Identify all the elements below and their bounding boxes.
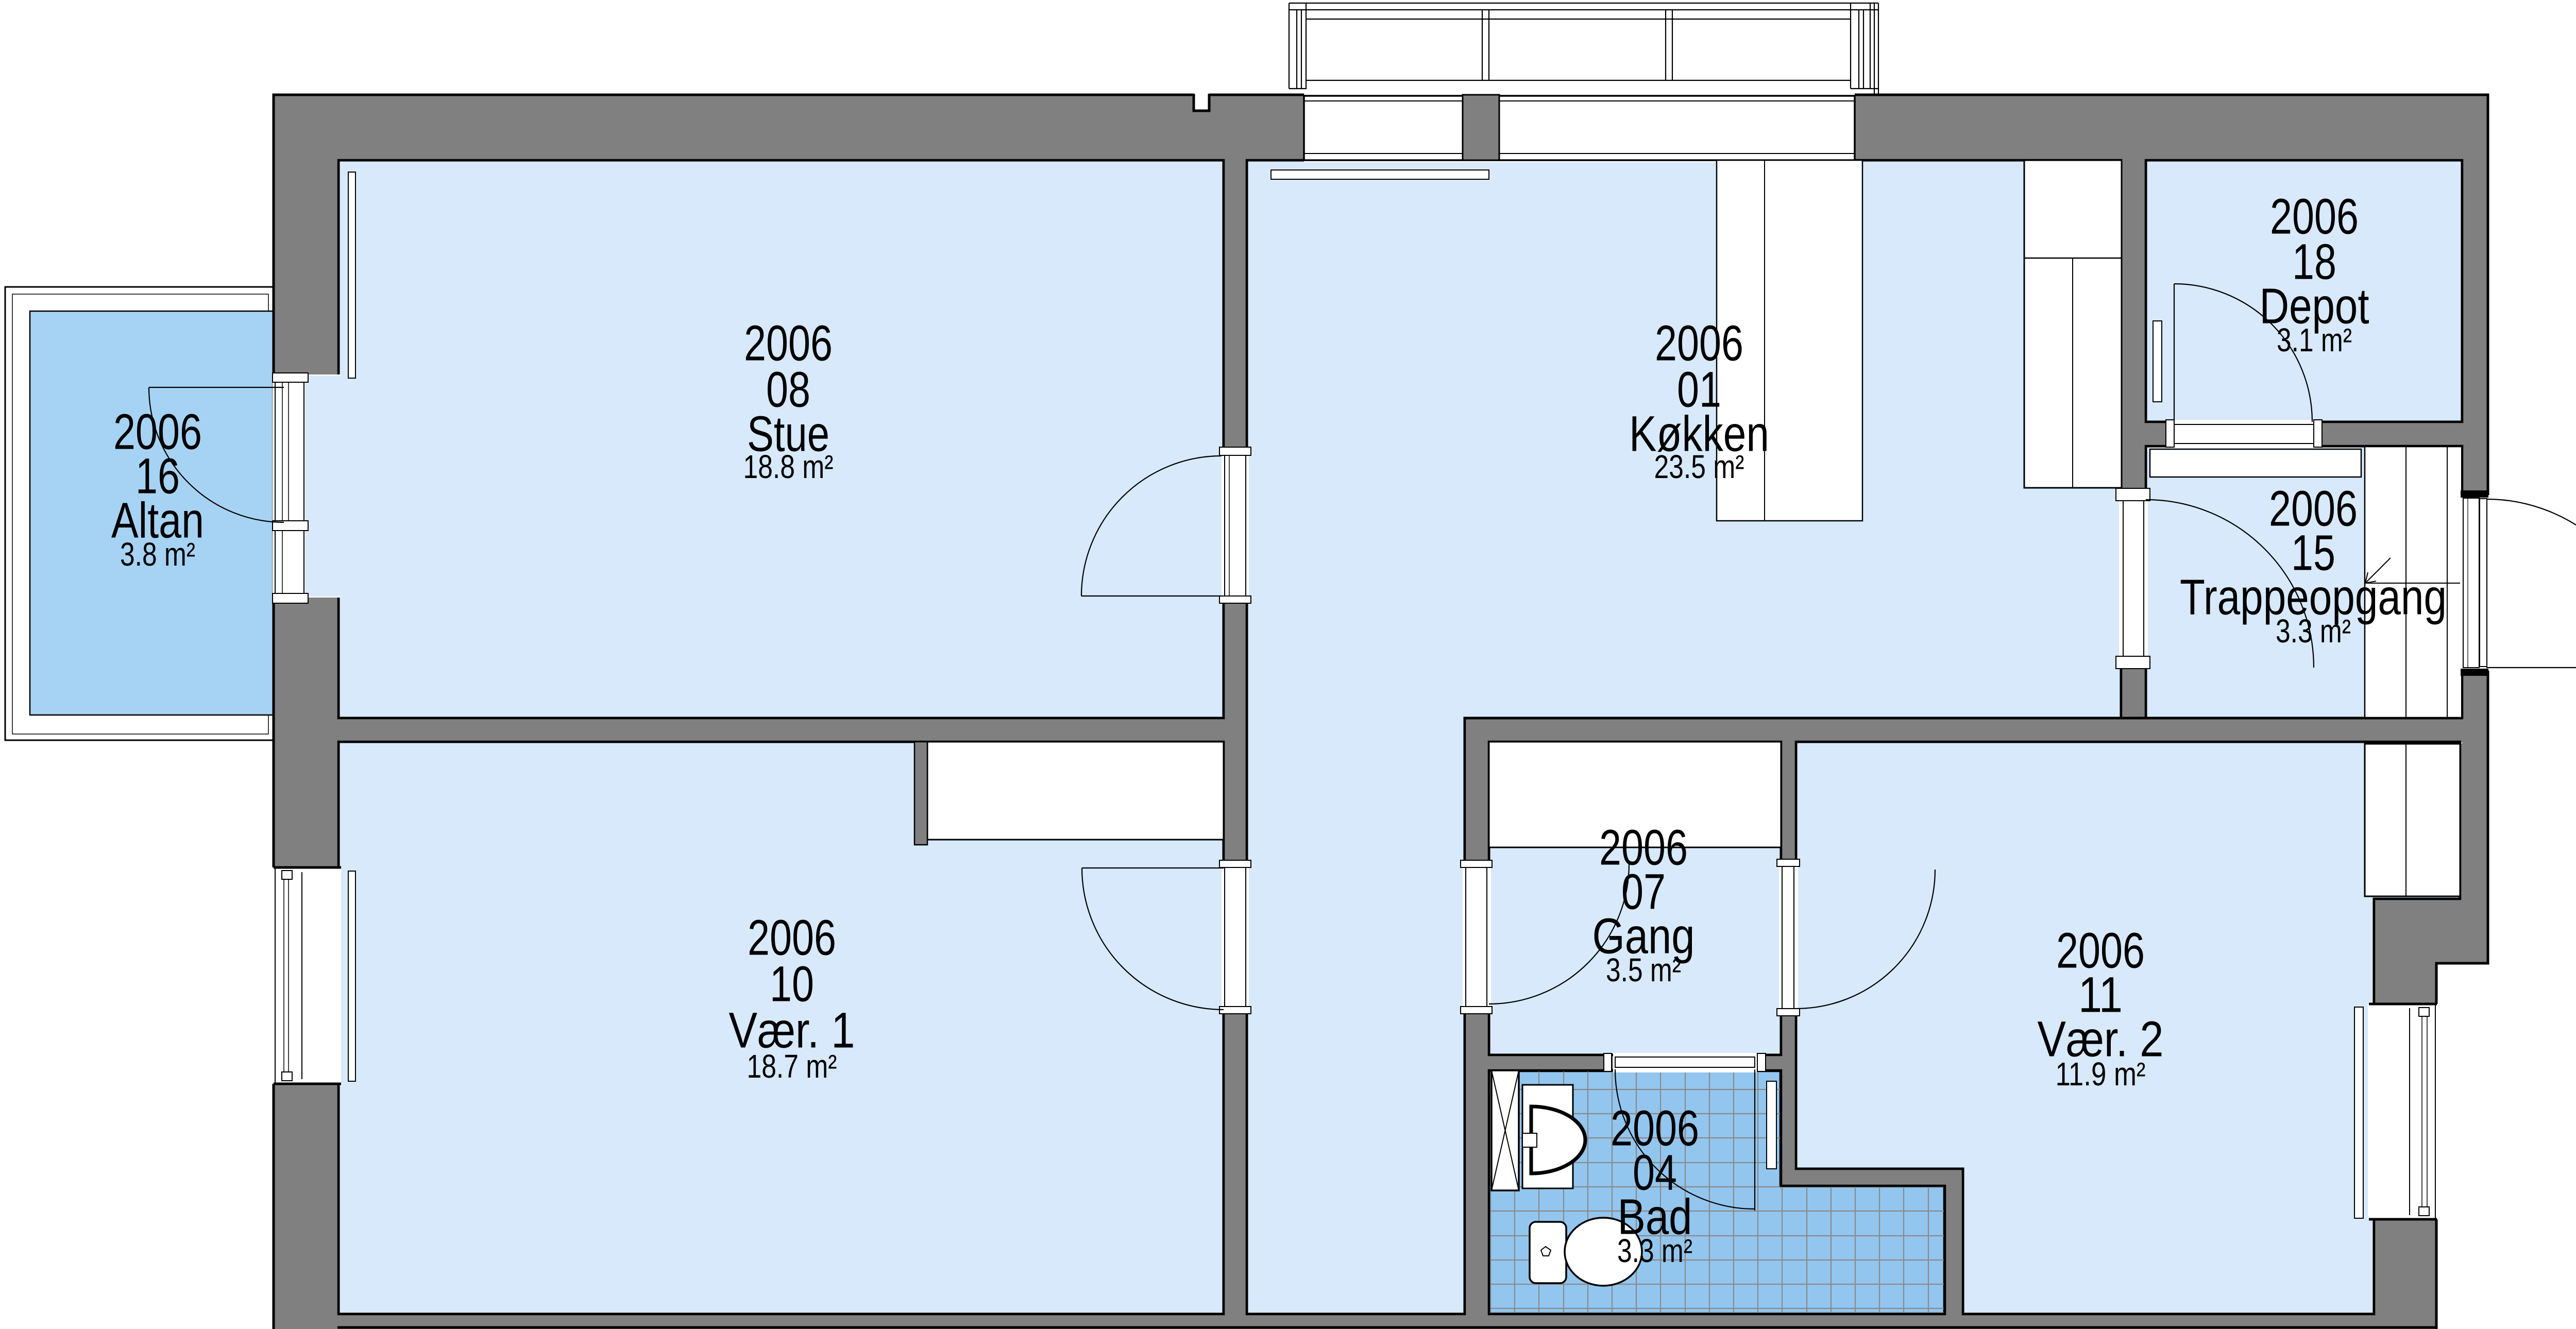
svg-text:3.8 m²: 3.8 m² [120,536,195,573]
svg-text:3.1 m²: 3.1 m² [2277,321,2352,359]
svg-text:11.9 m²: 11.9 m² [2056,1055,2146,1093]
svg-text:18.7 m²: 18.7 m² [747,1048,837,1085]
svg-text:3.3 m²: 3.3 m² [1617,1232,1692,1269]
svg-text:3.5 m²: 3.5 m² [1606,951,1681,989]
svg-text:3.3 m²: 3.3 m² [2276,612,2351,650]
svg-text:23.5 m²: 23.5 m² [1654,448,1744,485]
svg-text:18.8 m²: 18.8 m² [743,448,834,485]
